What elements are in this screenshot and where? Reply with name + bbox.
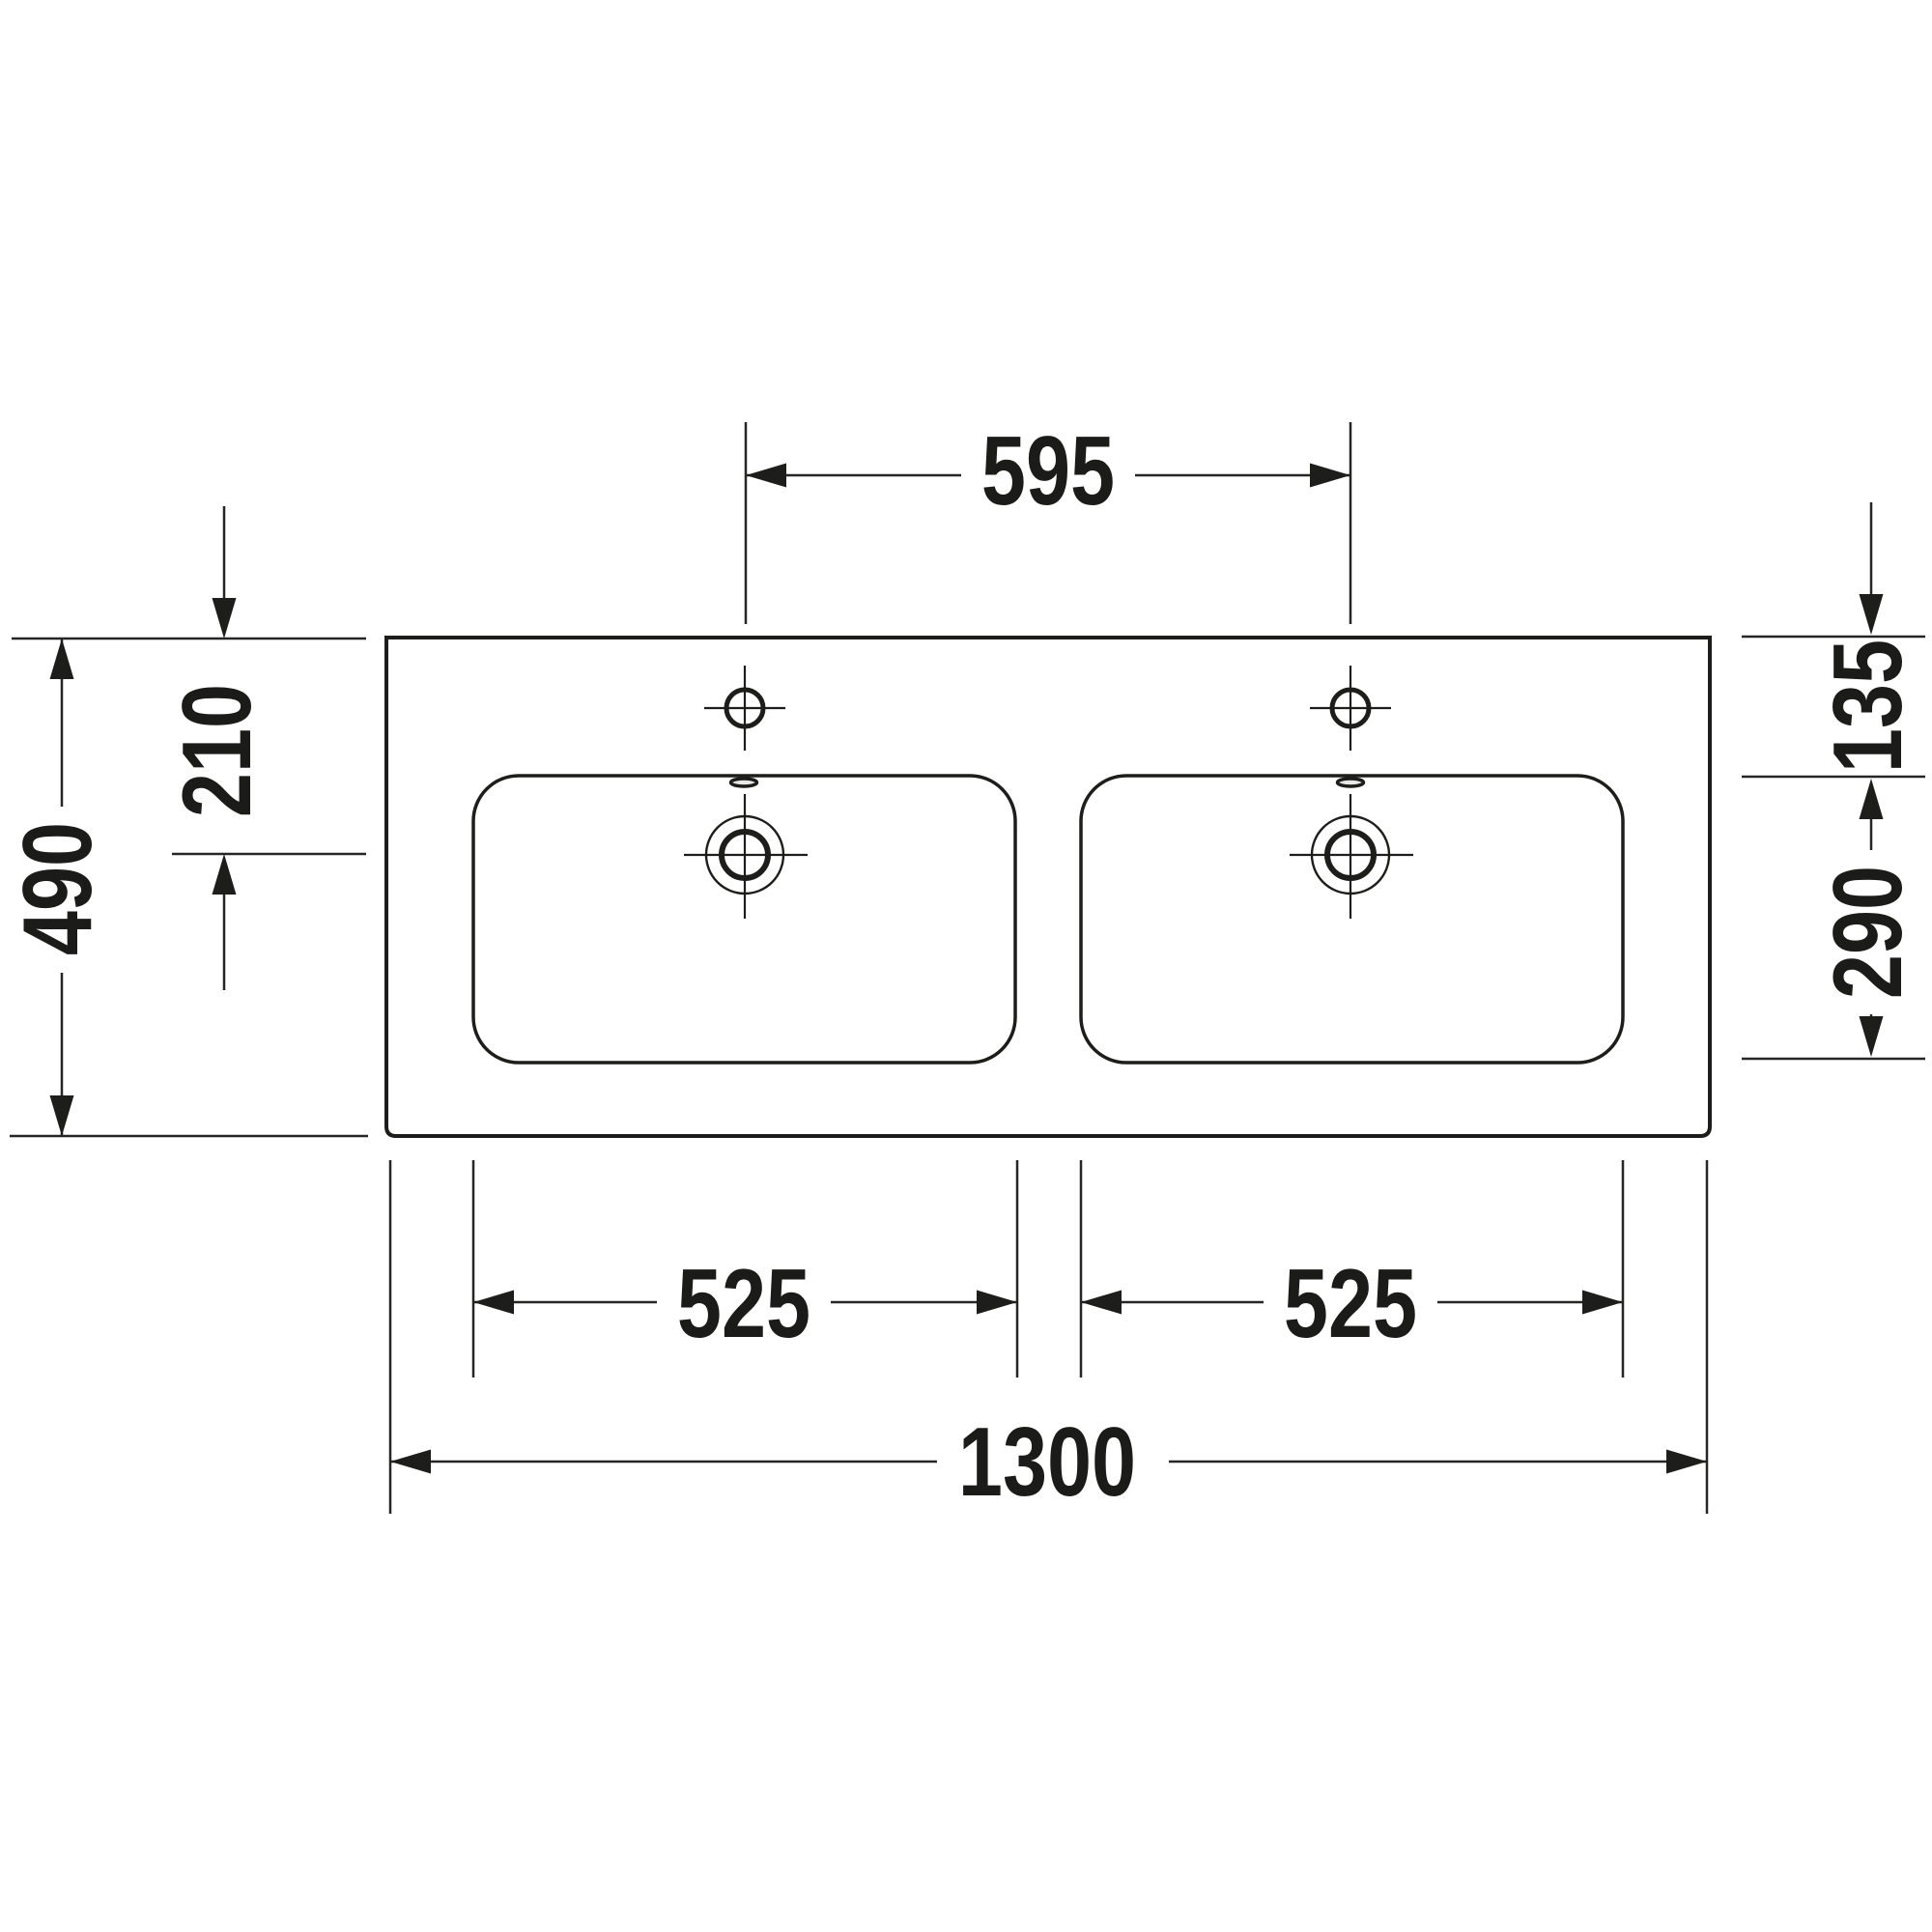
svg-text:135: 135 [1812,639,1922,773]
svg-text:525: 525 [677,1248,810,1358]
svg-text:290: 290 [1812,866,1922,999]
svg-text:1300: 1300 [958,1406,1136,1517]
svg-text:595: 595 [981,415,1115,526]
svg-text:525: 525 [1284,1248,1417,1358]
svg-text:210: 210 [161,684,271,817]
svg-text:490: 490 [2,822,112,955]
